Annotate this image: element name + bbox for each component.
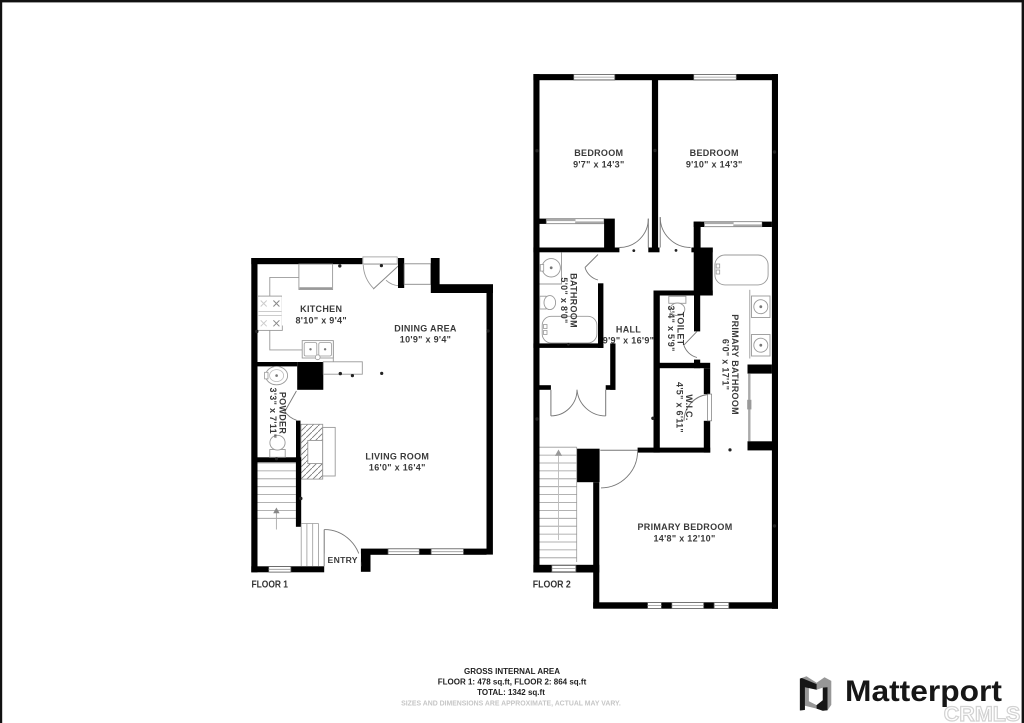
svg-text:4'5" x 6'11": 4'5" x 6'11" <box>675 382 685 433</box>
svg-text:3'4" x 5'9": 3'4" x 5'9" <box>666 306 676 352</box>
svg-text:POWDER: POWDER <box>277 392 287 435</box>
svg-text:GROSS INTERNAL AREA: GROSS INTERNAL AREA <box>464 667 560 676</box>
svg-text:KITCHEN: KITCHEN <box>300 304 342 314</box>
svg-text:W.I.C.: W.I.C. <box>684 394 694 420</box>
svg-text:9'7" x 14'3": 9'7" x 14'3" <box>573 159 624 169</box>
svg-text:PRIMARY BATHROOM: PRIMARY BATHROOM <box>730 314 740 415</box>
svg-text:CRMLS: CRMLS <box>944 702 1020 723</box>
svg-text:BEDROOM: BEDROOM <box>574 148 623 158</box>
svg-text:5'0" x 8'0": 5'0" x 8'0" <box>559 277 569 323</box>
svg-text:10'9" x 9'4": 10'9" x 9'4" <box>400 335 451 345</box>
svg-text:BATHROOM: BATHROOM <box>569 273 579 328</box>
svg-text:LIVING ROOM: LIVING ROOM <box>365 451 429 461</box>
svg-text:FLOOR 1: FLOOR 1 <box>252 579 289 590</box>
svg-text:SIZES AND DIMENSIONS ARE APPRO: SIZES AND DIMENSIONS ARE APPROXIMATE, AC… <box>401 701 621 708</box>
svg-text:16'0" x 16'4": 16'0" x 16'4" <box>369 462 426 472</box>
svg-text:8'10" x 9'4": 8'10" x 9'4" <box>295 315 346 325</box>
svg-text:PRIMARY BEDROOM: PRIMARY BEDROOM <box>637 522 732 532</box>
svg-text:9'9" x 16'9": 9'9" x 16'9" <box>603 336 654 346</box>
svg-text:BEDROOM: BEDROOM <box>690 148 739 158</box>
svg-text:HALL: HALL <box>616 324 641 334</box>
svg-text:ENTRY: ENTRY <box>328 555 358 565</box>
svg-text:TOILET: TOILET <box>676 312 686 346</box>
svg-text:DINING AREA: DINING AREA <box>394 324 457 334</box>
svg-text:14'8" x 12'10": 14'8" x 12'10" <box>653 533 715 543</box>
svg-text:FLOOR 2: FLOOR 2 <box>533 579 571 590</box>
svg-text:FLOOR 1: 478 sq.ft, FLOOR 2: 8: FLOOR 1: 478 sq.ft, FLOOR 2: 864 sq.ft <box>438 677 587 686</box>
svg-text:9'10" x 14'3": 9'10" x 14'3" <box>686 159 743 169</box>
svg-text:3'3" x 7'11": 3'3" x 7'11" <box>268 388 278 439</box>
svg-text:6'0" x 17'1": 6'0" x 17'1" <box>720 339 730 390</box>
svg-text:TOTAL: 1342 sq.ft: TOTAL: 1342 sq.ft <box>477 688 545 697</box>
